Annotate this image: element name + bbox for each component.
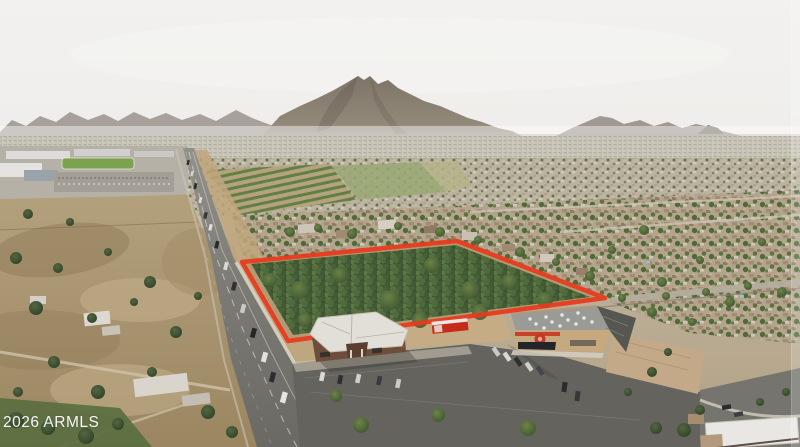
parking-area bbox=[54, 172, 174, 192]
aerial-photo-canvas bbox=[0, 0, 800, 447]
armls-watermark: 2026 ARMLS bbox=[3, 414, 99, 432]
aerial-photo: 2026 ARMLS bbox=[0, 0, 800, 447]
sports-field bbox=[62, 158, 134, 169]
small-structure bbox=[688, 414, 704, 424]
cloud-haze bbox=[70, 17, 730, 93]
storefront-glass bbox=[518, 342, 556, 350]
house-roof bbox=[102, 325, 121, 336]
photo-edge-strip bbox=[792, 0, 800, 447]
entry-gable bbox=[346, 342, 368, 358]
